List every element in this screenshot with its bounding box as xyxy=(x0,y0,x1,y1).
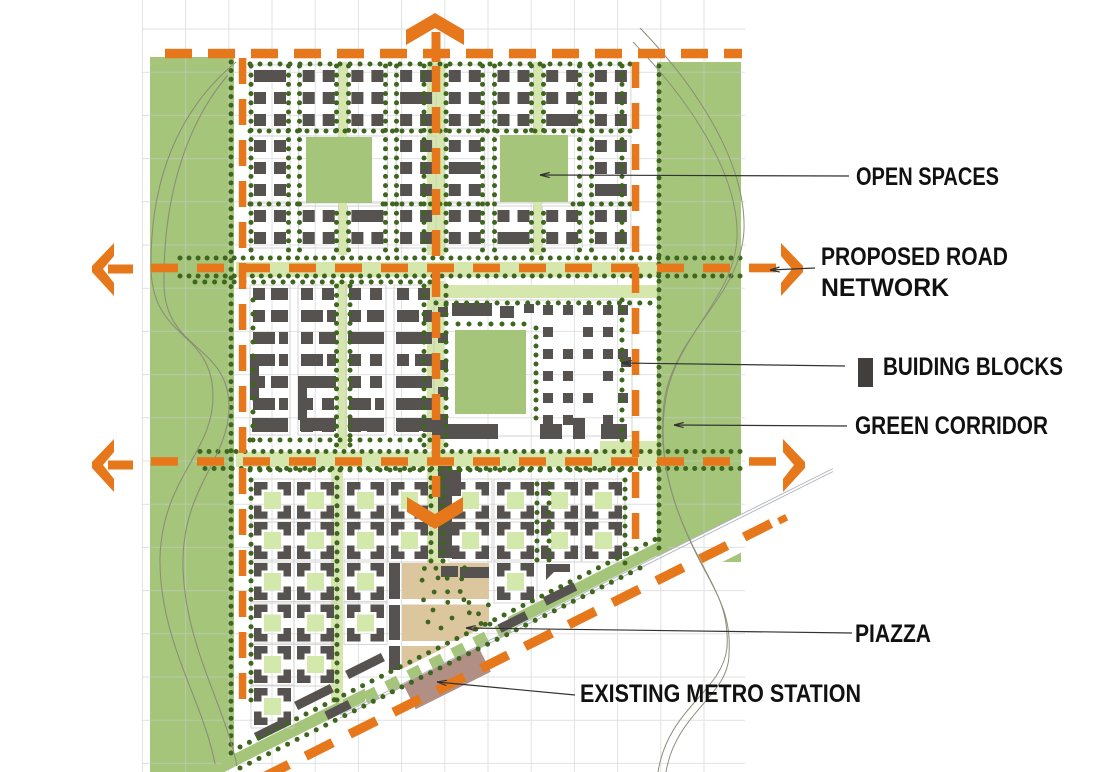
svg-text:BUIDING BLOCKS: BUIDING BLOCKS xyxy=(883,353,1063,381)
svg-text:OPEN SPACES: OPEN SPACES xyxy=(856,163,999,191)
svg-text:GREEN CORRIDOR: GREEN CORRIDOR xyxy=(855,412,1048,440)
svg-text:NETWORK: NETWORK xyxy=(821,274,949,302)
svg-text:EXISTING METRO STATION: EXISTING METRO STATION xyxy=(580,680,861,708)
svg-text:PROPOSED ROAD: PROPOSED ROAD xyxy=(821,243,1008,271)
svg-text:PIAZZA: PIAZZA xyxy=(855,620,931,648)
